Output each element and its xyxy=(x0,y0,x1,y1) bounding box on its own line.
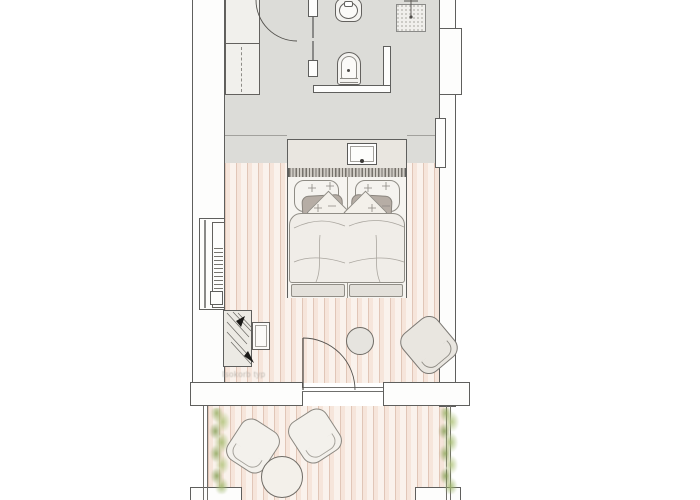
side-table xyxy=(346,327,374,355)
folded-blanket-right xyxy=(349,284,403,297)
left-exterior-wall xyxy=(192,0,225,384)
wardrobe-shelf-divider xyxy=(226,43,259,44)
balcony-round-table xyxy=(261,456,303,498)
wardrobe xyxy=(225,0,260,95)
toilet-flush-button xyxy=(344,1,353,7)
balcony-door-threshold xyxy=(302,387,383,392)
window-pane-left xyxy=(204,220,206,308)
bidet-bowl xyxy=(341,56,357,79)
bidet-base-lines xyxy=(340,78,358,83)
folded-blanket-left xyxy=(291,284,345,297)
bidet-faucet-dot xyxy=(347,69,350,72)
bedroom-window-niche-right xyxy=(435,118,446,168)
wardrobe-hanging-rail xyxy=(241,47,242,92)
washbasin-faucet-dot xyxy=(360,159,364,163)
glass-partition-jamb-top xyxy=(308,0,318,17)
bedroom-balcony-wall-left xyxy=(190,382,303,406)
shower-tray xyxy=(396,4,426,32)
fold-out-desk xyxy=(223,310,252,367)
radiator-fins xyxy=(214,247,223,289)
stool-inner xyxy=(255,325,267,347)
headboard-fringe xyxy=(288,168,406,177)
duvet xyxy=(289,213,405,283)
faint-wall-annotation: Isokorb typ xyxy=(222,370,266,379)
glass-partition-jamb-mid xyxy=(308,60,318,77)
bathroom-window-niche xyxy=(439,28,462,95)
floor-joint-line-left xyxy=(225,135,287,136)
bedroom-balcony-wall-right xyxy=(383,382,470,406)
planter-right xyxy=(435,408,462,494)
glass-partition-pane-upper xyxy=(312,17,314,38)
window-jamb-block-left xyxy=(210,291,223,305)
glass-partition-pane-lower xyxy=(312,41,314,61)
wc-partition-horizontal xyxy=(313,85,391,93)
floor-plan: Isokorb typ xyxy=(0,0,700,500)
